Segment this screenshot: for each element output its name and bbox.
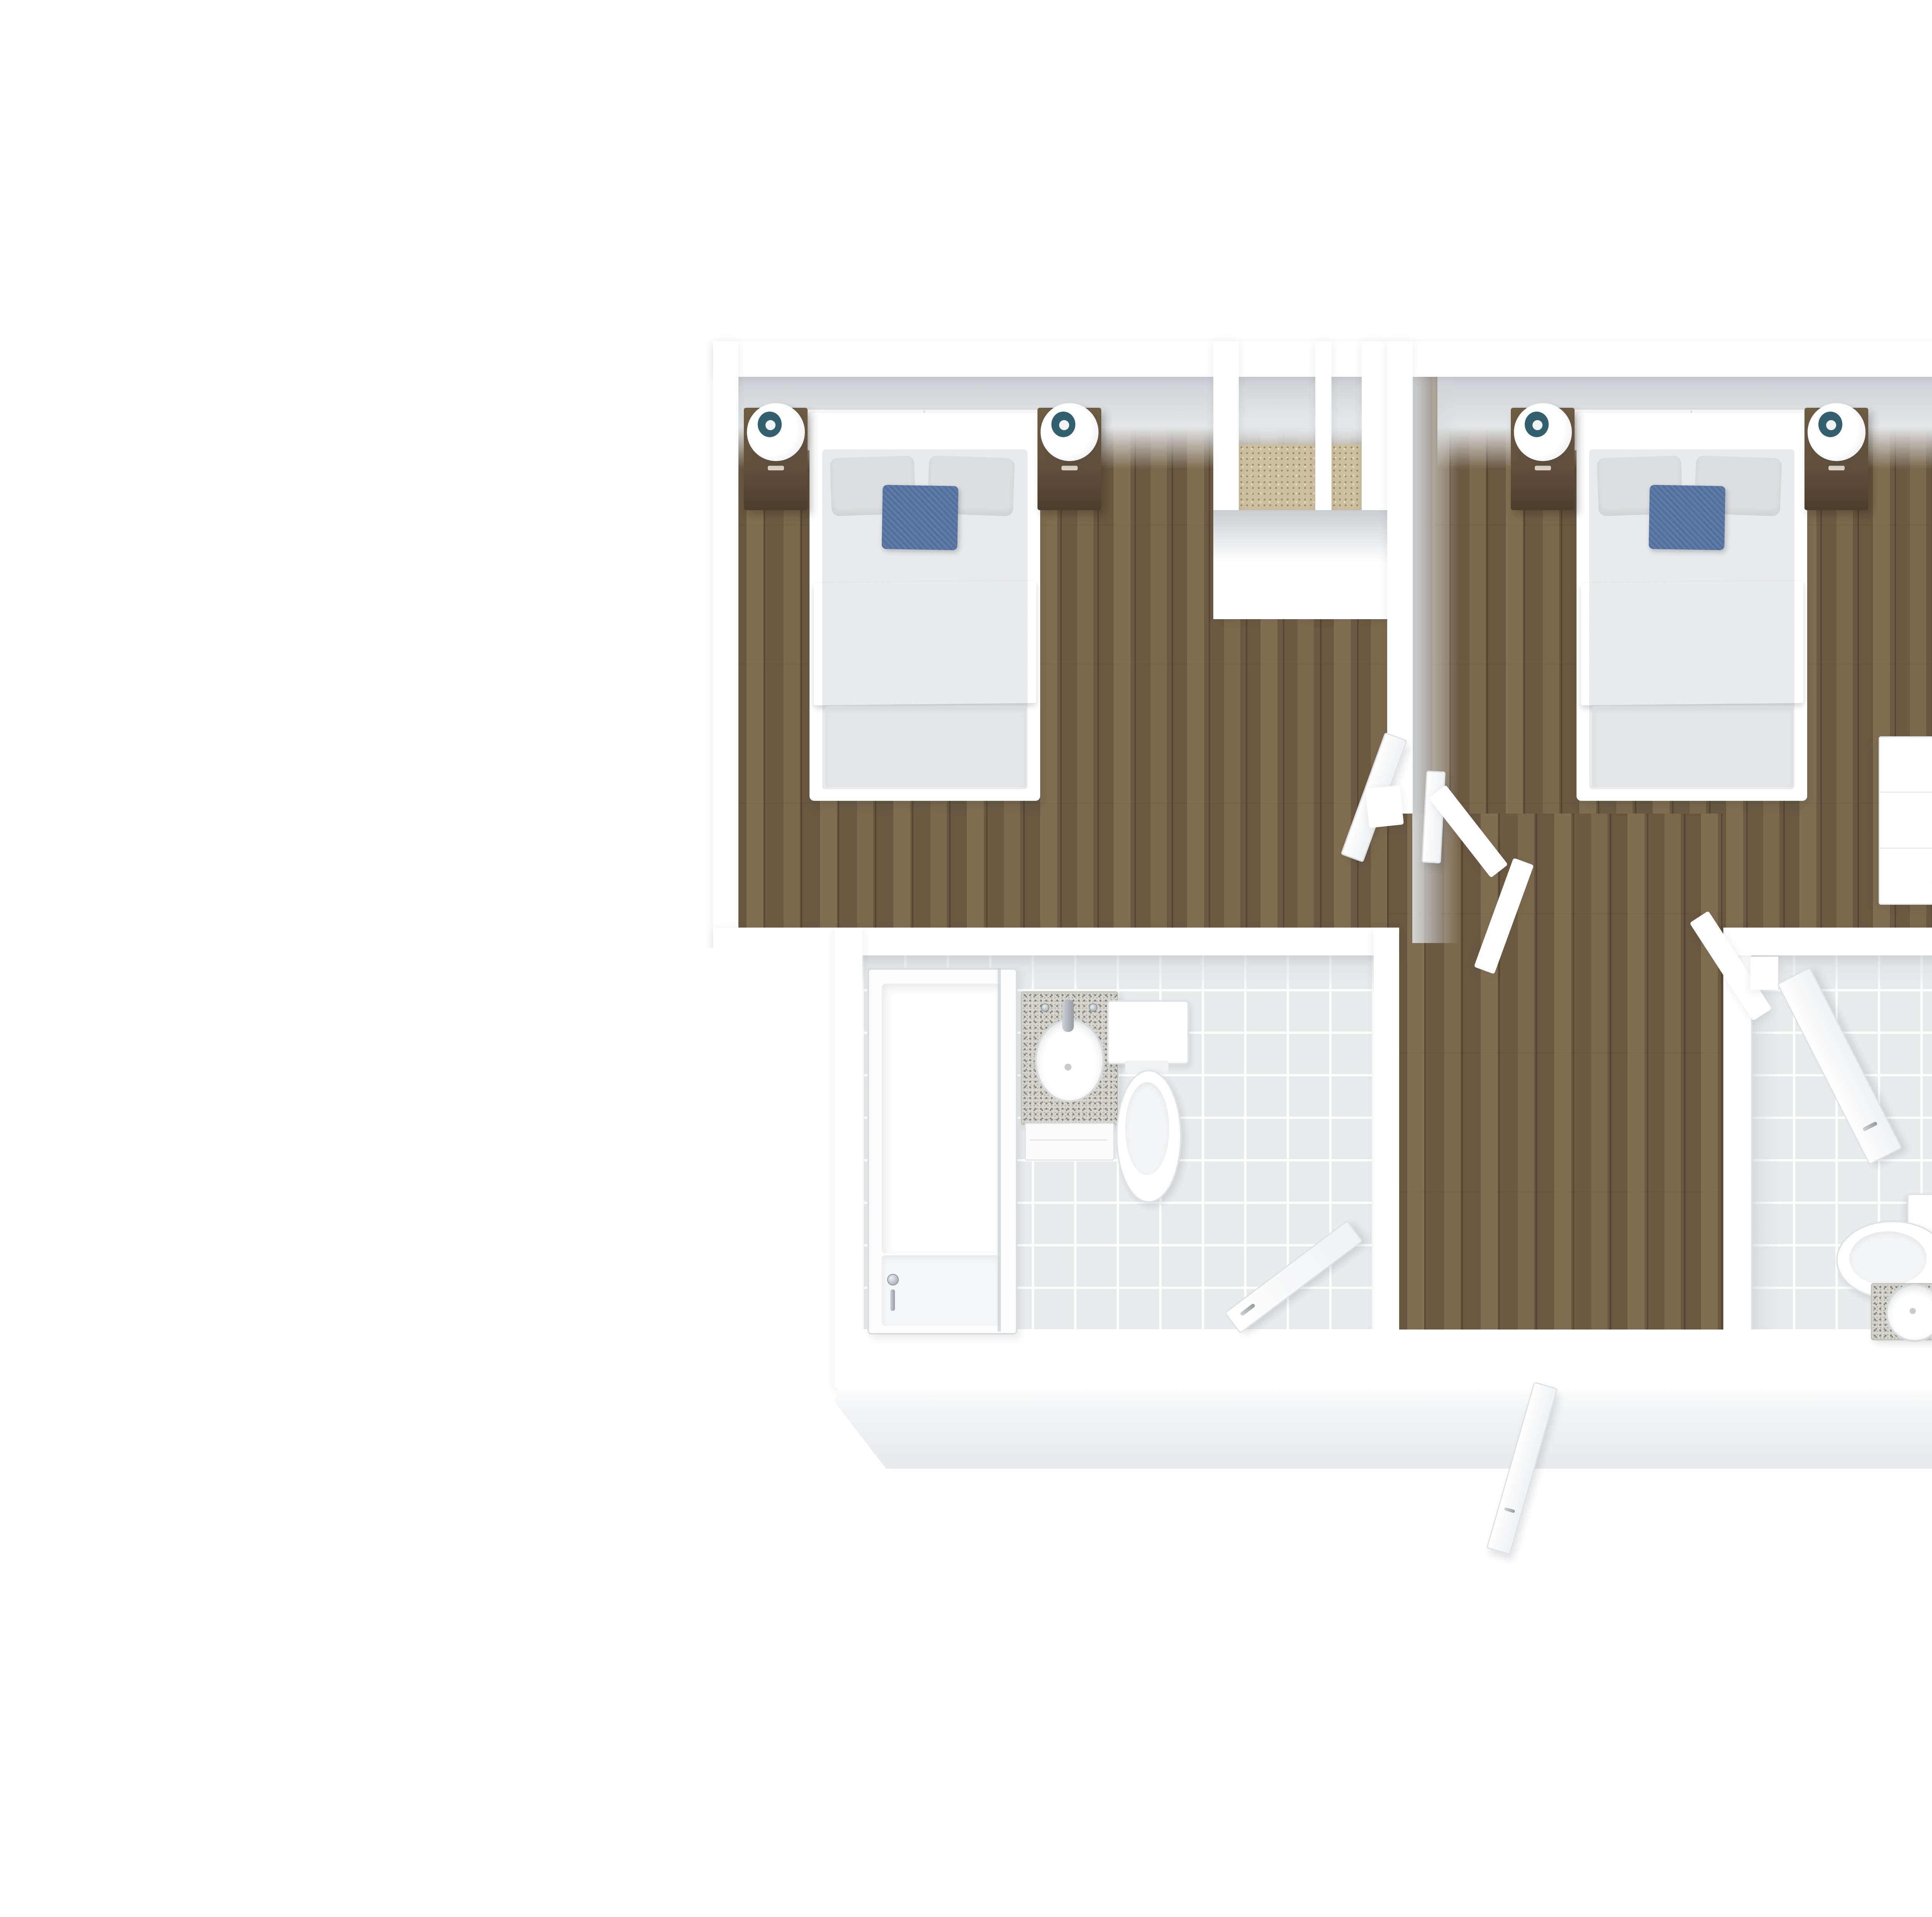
- nightstand-drawer-pull: [1061, 466, 1078, 470]
- bed-right-accent-pillow: [1649, 485, 1726, 550]
- hallway-door-jamb: [1365, 785, 1404, 828]
- table-lamp: [1041, 403, 1099, 461]
- lamp-bulb: [1059, 420, 1069, 430]
- shower-riser: [890, 1289, 895, 1311]
- nightstand-drawer-pull: [1535, 466, 1551, 470]
- bathroom-right-door-jamb: [1750, 957, 1778, 990]
- faucet-left-handle: [1041, 1003, 1049, 1012]
- closet-recess-carpet: [1331, 444, 1362, 510]
- table-lamp: [1808, 403, 1866, 461]
- bathroom-left-west-wall: [835, 928, 862, 1388]
- sink-left-drain: [1065, 1064, 1071, 1071]
- dresser-seam: [1880, 792, 1932, 793]
- bathtub-basin: [882, 984, 1000, 1253]
- floor-plan-canvas: [0, 0, 1932, 1917]
- lamp-bulb: [1532, 420, 1543, 430]
- door-handle: [1504, 1507, 1515, 1513]
- bed-right-foot-fold: [1592, 706, 1793, 787]
- bathroom-left-east-wall: [1374, 928, 1399, 1388]
- faucet-left: [1062, 999, 1074, 1032]
- door-handle: [1862, 1121, 1878, 1132]
- nightstand-drawer-pull: [1828, 466, 1845, 470]
- bathroom-right-north-wall: [1723, 928, 1932, 955]
- closet-nook-carpet: [1238, 444, 1316, 510]
- closet-south-wall: [1213, 510, 1387, 619]
- closet-recess-wall-face: [1331, 376, 1362, 453]
- table-lamp: [1514, 403, 1572, 461]
- bed-left-throw-blanket: [814, 581, 1036, 705]
- bed-left-accent-pillow: [882, 485, 959, 550]
- lamp-bulb: [1826, 420, 1836, 430]
- toilet-right-lid-line: [1849, 1231, 1927, 1285]
- west-exterior-wall: [713, 341, 738, 955]
- dresser: [1879, 736, 1932, 905]
- lamp-bulb: [765, 420, 776, 430]
- table-lamp: [747, 403, 805, 461]
- south-exterior-wall: [835, 1330, 1932, 1469]
- bed-right-throw-blanket: [1581, 581, 1803, 705]
- vanity-left-cabinet: [1025, 1123, 1114, 1161]
- bathtub-bench: [882, 1255, 1000, 1326]
- closet-nook-wall-face: [1238, 376, 1316, 453]
- nightstand-drawer-pull: [768, 466, 784, 470]
- toilet-left-lid-line: [1125, 1082, 1169, 1175]
- sink-right-drain: [1910, 1308, 1916, 1314]
- door-handle: [1240, 1303, 1255, 1316]
- vanity-left-drawer-seam: [1030, 1139, 1107, 1141]
- bed-left-foot-fold: [825, 706, 1026, 787]
- shower-control: [887, 1274, 899, 1285]
- faucet-left-handle: [1089, 1003, 1097, 1012]
- west-wall-stub: [657, 948, 862, 1025]
- dresser-seam: [1880, 848, 1932, 849]
- shower-glass-screen: [998, 968, 1001, 1331]
- toilet-left-tank: [1107, 1000, 1189, 1064]
